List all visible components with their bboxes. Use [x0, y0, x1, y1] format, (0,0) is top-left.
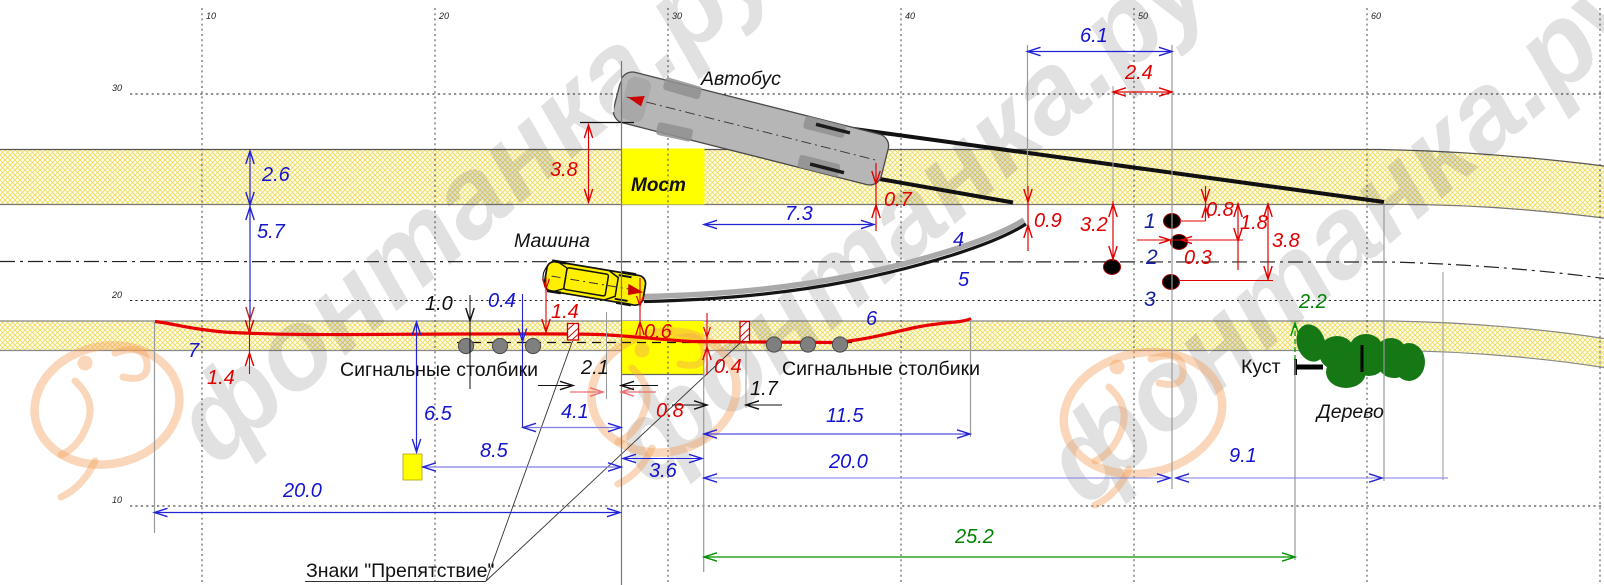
- svg-text:6: 6: [866, 308, 878, 330]
- svg-text:20.0: 20.0: [282, 480, 322, 502]
- svg-text:Машина: Машина: [514, 230, 590, 252]
- svg-text:9.1: 9.1: [1229, 445, 1257, 467]
- svg-text:40: 40: [905, 11, 915, 21]
- svg-text:7: 7: [188, 340, 200, 362]
- svg-text:3: 3: [1144, 288, 1156, 311]
- svg-text:4: 4: [953, 229, 964, 251]
- svg-text:Автобус: Автобус: [700, 68, 781, 90]
- svg-text:0.8: 0.8: [1206, 199, 1234, 221]
- svg-text:2.1: 2.1: [580, 357, 609, 379]
- svg-text:8.5: 8.5: [480, 440, 509, 462]
- svg-text:2.6: 2.6: [261, 164, 291, 186]
- svg-text:Мост: Мост: [631, 175, 686, 196]
- svg-text:1.8: 1.8: [1240, 212, 1268, 234]
- svg-text:10: 10: [112, 495, 122, 505]
- svg-text:0.8: 0.8: [656, 400, 684, 422]
- svg-text:5.7: 5.7: [257, 221, 286, 243]
- svg-text:0.4: 0.4: [714, 356, 742, 378]
- svg-text:25.2: 25.2: [954, 526, 994, 548]
- svg-text:6.5: 6.5: [424, 403, 453, 425]
- svg-text:4.1: 4.1: [561, 401, 589, 423]
- svg-text:20: 20: [438, 11, 449, 21]
- svg-text:20: 20: [111, 290, 122, 300]
- svg-text:7.3: 7.3: [785, 203, 813, 225]
- svg-text:0.4: 0.4: [488, 290, 516, 312]
- svg-text:2: 2: [1145, 246, 1158, 269]
- svg-text:3.6: 3.6: [649, 460, 678, 482]
- svg-text:3.8: 3.8: [1272, 230, 1300, 252]
- svg-text:2.4: 2.4: [1124, 62, 1153, 84]
- svg-text:1.7: 1.7: [750, 378, 779, 400]
- svg-text:3.2: 3.2: [1080, 214, 1108, 236]
- svg-text:1.4: 1.4: [207, 367, 235, 389]
- svg-text:1: 1: [1144, 210, 1156, 233]
- svg-text:Знаки "Препятствие": Знаки "Препятствие": [306, 560, 494, 582]
- svg-text:3.8: 3.8: [550, 159, 578, 181]
- svg-text:Дерево: Дерево: [1315, 401, 1384, 423]
- svg-text:5: 5: [958, 269, 970, 291]
- svg-text:30: 30: [112, 83, 122, 93]
- svg-text:20.0: 20.0: [828, 451, 868, 473]
- svg-text:0.3: 0.3: [1184, 247, 1212, 269]
- svg-text:11.5: 11.5: [826, 405, 864, 427]
- svg-text:6.1: 6.1: [1080, 25, 1108, 47]
- svg-text:1.0: 1.0: [425, 293, 453, 315]
- svg-text:Куст: Куст: [1241, 356, 1281, 378]
- svg-text:10: 10: [206, 11, 216, 21]
- svg-text:Сигнальные столбики: Сигнальные столбики: [782, 358, 980, 380]
- svg-text:0.9: 0.9: [1034, 210, 1062, 232]
- svg-text:60: 60: [1371, 11, 1381, 21]
- svg-text:1.4: 1.4: [551, 301, 579, 323]
- svg-text:0.6: 0.6: [644, 321, 673, 343]
- svg-text:0.7: 0.7: [884, 189, 913, 211]
- svg-text:2.2: 2.2: [1298, 291, 1327, 313]
- svg-text:Сигнальные столбики: Сигнальные столбики: [340, 359, 538, 381]
